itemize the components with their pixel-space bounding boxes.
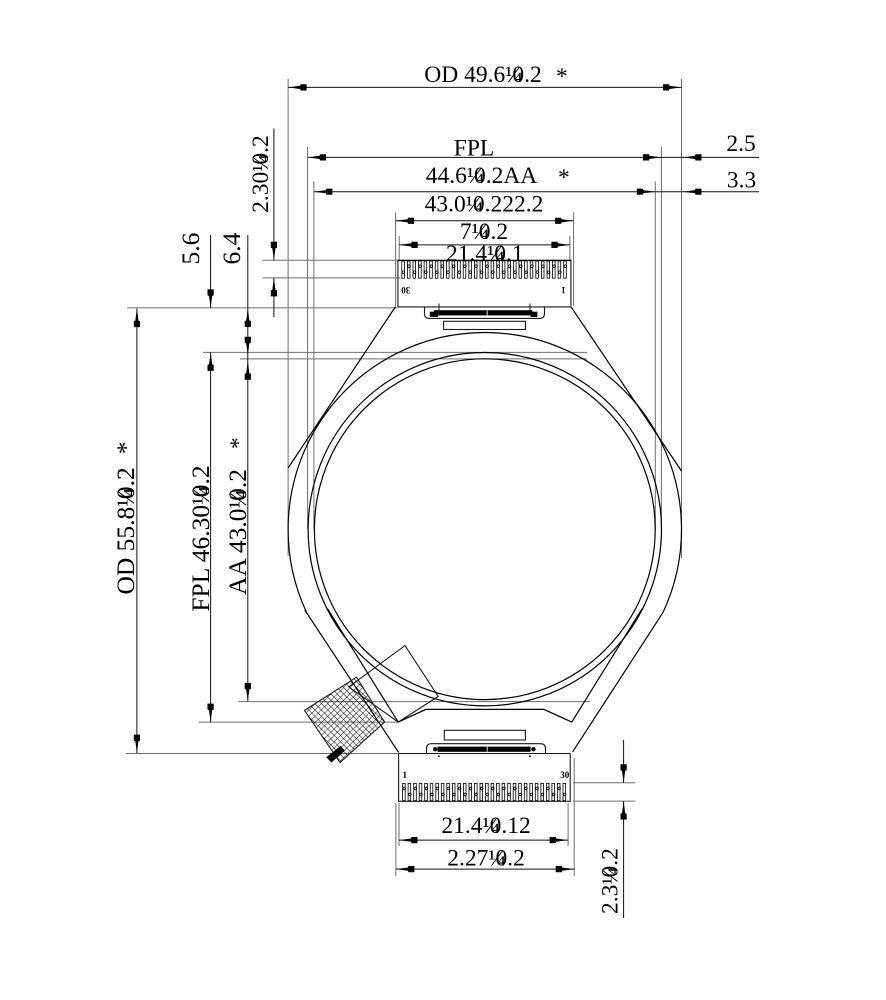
svg-text:FPL 46.30¼0.2: FPL 46.30¼0.2	[186, 465, 215, 611]
svg-text:FPL: FPL	[454, 136, 495, 162]
svg-text:AA 43.0¼0.2: AA 43.0¼0.2	[223, 469, 252, 595]
svg-text:OD 49.6¼0.2: OD 49.6¼0.2	[424, 62, 541, 88]
svg-text:3.3: 3.3	[727, 168, 756, 194]
svg-text:43.0¼0.222.2: 43.0¼0.222.2	[425, 192, 544, 218]
svg-text:6.4: 6.4	[217, 232, 246, 264]
svg-text:2.27¼0.2: 2.27¼0.2	[447, 846, 525, 872]
svg-text:5.6: 5.6	[176, 233, 205, 265]
svg-text:*: *	[226, 437, 252, 449]
svg-text:2.30¼0.2: 2.30¼0.2	[248, 135, 274, 213]
svg-text:21.4¼0.12: 21.4¼0.12	[441, 813, 530, 839]
svg-text:2.3¼0.2: 2.3¼0.2	[598, 848, 624, 914]
svg-text:2.5: 2.5	[726, 131, 755, 157]
svg-text:1: 1	[561, 285, 566, 295]
svg-text:30: 30	[401, 285, 411, 295]
svg-text:44.6¼0.2AA: 44.6¼0.2AA	[426, 163, 538, 189]
svg-text:21.4¼0.1: 21.4¼0.1	[446, 241, 524, 267]
svg-text:30: 30	[560, 770, 570, 780]
svg-text:*: *	[556, 64, 568, 90]
svg-text:*: *	[558, 165, 570, 191]
svg-text:1: 1	[403, 770, 408, 780]
